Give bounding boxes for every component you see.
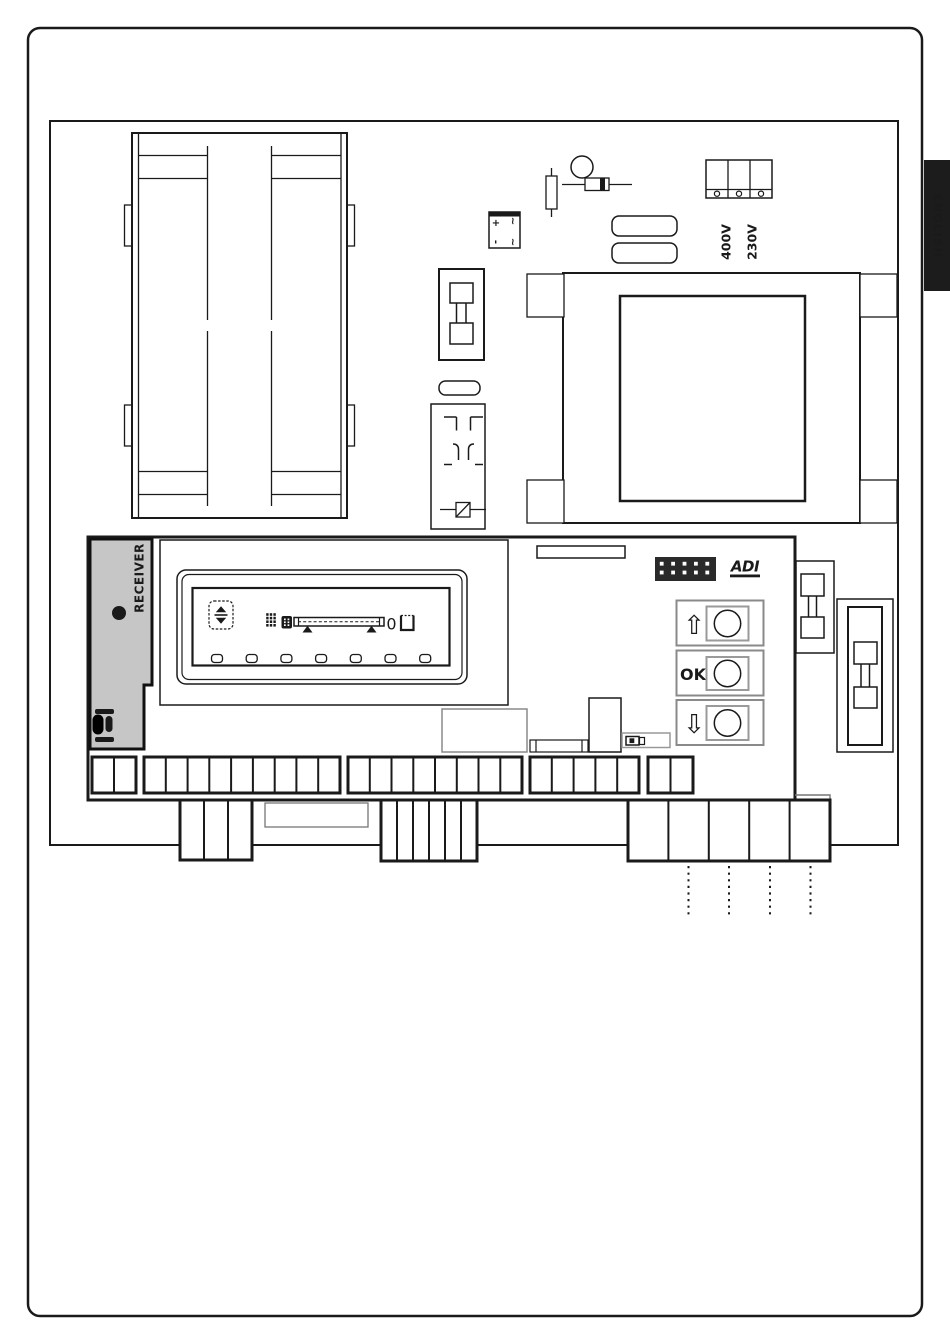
bridge-rectifier: + ~ - ~ (489, 212, 520, 248)
manual-figure-page: ENGLISH 400V 230V + (0, 0, 950, 1344)
left-component-block (125, 133, 355, 518)
fuse-cap (801, 574, 824, 596)
connector-1 (180, 800, 252, 860)
display-module: 0 (160, 540, 508, 705)
contactor-block (431, 404, 486, 529)
terminal-blocks (92, 757, 693, 793)
mini-jumper (622, 733, 670, 748)
voltage-label-230: 230V (745, 224, 760, 260)
pin-header (655, 557, 716, 581)
rectifier-ac-bottom: ~ (507, 238, 518, 246)
mount-tab (125, 205, 133, 246)
antenna-plug (106, 716, 113, 732)
ok-button: OK (677, 651, 764, 696)
ok-button-label: OK (680, 665, 707, 684)
display-zero: 0 (386, 615, 396, 634)
receiver-button-icon (112, 606, 126, 620)
up-arrow-icon: ⇧ (683, 611, 705, 641)
transformer-tab (527, 274, 564, 317)
power-input-terminal: 400V 230V (706, 160, 772, 260)
connector-strip (530, 740, 588, 752)
adi-logo: ADI (730, 558, 760, 578)
receiver-module: RECEIVER (90, 539, 152, 749)
terminal-block-d (530, 757, 639, 793)
antenna-pin (95, 737, 114, 742)
led-lamp-icon (571, 156, 593, 178)
mount-tab (347, 405, 355, 446)
capacitor-box (589, 698, 621, 752)
fuse-holder-middle (439, 269, 484, 360)
adi-logo-text: ADI (730, 558, 760, 576)
connector-3 (628, 800, 830, 861)
cable-dotted-lines (689, 866, 811, 916)
rectifier-ac-top: ~ (507, 217, 518, 225)
fuse-holder-large (837, 599, 893, 752)
transformer-tab (860, 274, 897, 317)
antenna-socket (93, 715, 104, 735)
rectifier-minus: - (490, 240, 501, 244)
diode-body (585, 178, 609, 191)
language-tab-label: ENGLISH (931, 194, 944, 258)
transformer-tab (527, 480, 564, 523)
fuse-cap (854, 642, 877, 664)
transformer (527, 273, 897, 523)
down-button: ⇩ (677, 700, 764, 745)
rectifier-plus: + (492, 218, 500, 229)
up-button: ⇧ (677, 601, 764, 646)
relay-pill (612, 216, 677, 236)
board-slot (537, 546, 625, 558)
fuse-cap (450, 283, 473, 303)
resistor (546, 176, 557, 209)
fuse-holder-small (796, 561, 834, 653)
relay-pill (612, 243, 677, 263)
discrete-components (546, 156, 677, 263)
relay-box (442, 709, 527, 752)
fuse-cap (801, 617, 824, 638)
fuse-cap (450, 323, 473, 344)
diode-band (600, 178, 605, 191)
antenna-pin (95, 709, 114, 714)
transformer-tab (860, 480, 897, 523)
receiver-label: RECEIVER (133, 543, 147, 613)
remote-icon (282, 616, 293, 629)
mount-tab (347, 205, 355, 246)
terminal-block-b (144, 757, 340, 793)
bottom-connectors (180, 800, 830, 861)
language-tab: ENGLISH (924, 160, 950, 291)
down-arrow-icon: ⇩ (683, 710, 705, 740)
fuse-cap (854, 687, 877, 708)
plate-slot (265, 803, 368, 827)
program-buttons: ⇧ OK ⇩ (677, 601, 764, 746)
mount-tab (125, 405, 133, 446)
voltage-label-400: 400V (719, 224, 734, 260)
jumper-pill (439, 381, 480, 395)
